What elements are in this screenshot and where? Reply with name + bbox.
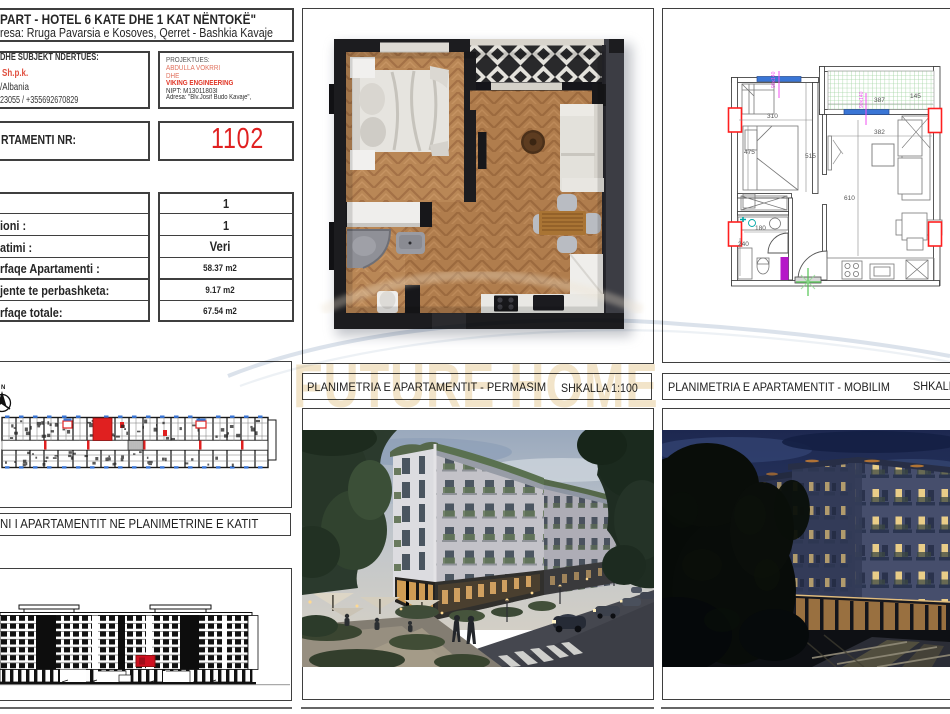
svg-text:240: 240: [738, 241, 749, 248]
svg-text:N: N: [1, 385, 5, 391]
svg-text:610: 610: [844, 195, 855, 202]
svg-text:90x140: 90x140: [859, 91, 865, 108]
svg-text:515: 515: [805, 153, 816, 160]
svg-text:382: 382: [874, 129, 885, 136]
svg-text:310: 310: [767, 113, 778, 120]
svg-text:475: 475: [744, 149, 755, 156]
svg-text:90x140: 90x140: [771, 71, 777, 88]
svg-text:145: 145: [910, 93, 921, 100]
svg-text:180: 180: [755, 225, 766, 232]
svg-text:387: 387: [874, 97, 885, 104]
